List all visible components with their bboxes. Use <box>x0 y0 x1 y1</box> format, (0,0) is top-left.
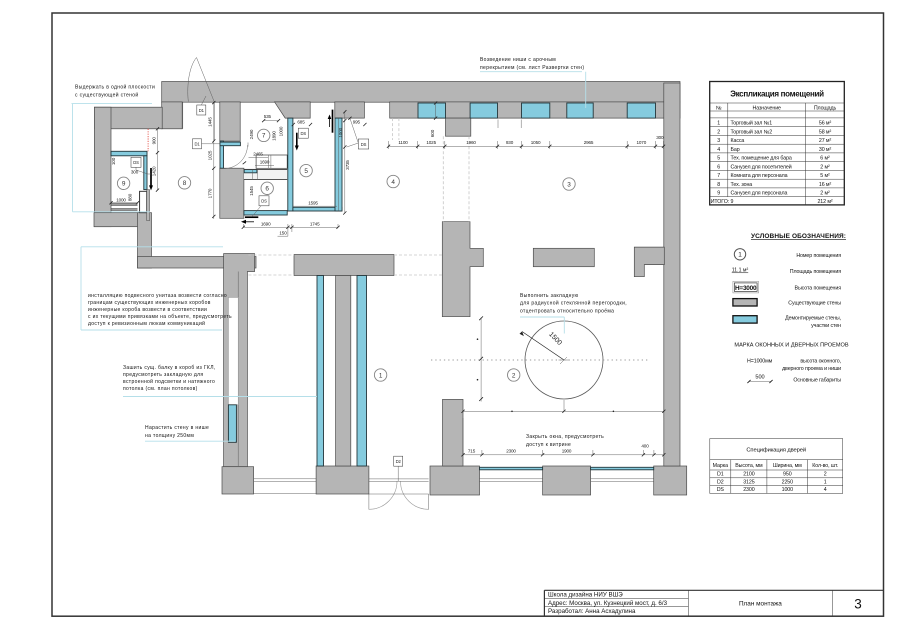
svg-text:Ширина, мм: Ширина, мм <box>773 463 802 469</box>
svg-text:7: 7 <box>262 133 266 140</box>
svg-text:Площадь: Площадь <box>814 105 837 111</box>
svg-text:3: 3 <box>567 181 571 188</box>
svg-text:Назначение: Назначение <box>752 105 781 111</box>
svg-text:2965: 2965 <box>584 140 594 145</box>
svg-text:58 м²: 58 м² <box>819 129 832 135</box>
svg-text:1420: 1420 <box>152 166 157 176</box>
svg-text:УСЛОВНЫЕ ОБОЗНАЧЕНИЯ:: УСЛОВНЫЕ ОБОЗНАЧЕНИЯ: <box>751 233 846 240</box>
svg-text:Школа дизайна НИУ ВШЭ: Школа дизайна НИУ ВШЭ <box>548 592 623 599</box>
svg-text:1: 1 <box>738 252 742 259</box>
svg-text:3735: 3735 <box>345 160 350 170</box>
svg-text:150: 150 <box>279 231 287 236</box>
svg-text:2 м²: 2 м² <box>820 191 830 197</box>
svg-text:930: 930 <box>506 140 514 145</box>
svg-text:4: 4 <box>824 487 827 493</box>
svg-text:995: 995 <box>353 119 361 124</box>
svg-text:Зашить сущ. балку в короб из Г: Зашить сущ. балку в короб из ГКЛ, <box>123 365 216 371</box>
svg-text:Санузел для персонала: Санузел для персонала <box>731 191 788 197</box>
svg-text:8: 8 <box>183 180 187 187</box>
svg-text:9: 9 <box>717 191 720 197</box>
svg-text:5: 5 <box>304 168 308 175</box>
svg-text:1100: 1100 <box>398 140 408 145</box>
svg-text:30 м²: 30 м² <box>819 147 832 153</box>
svg-text:Демонтируемые стены,: Демонтируемые стены, <box>785 316 841 322</box>
svg-text:предусмотреть закладную для: предусмотреть закладную для <box>123 372 203 378</box>
svg-text:1: 1 <box>824 479 827 485</box>
svg-text:600: 600 <box>430 129 435 137</box>
svg-text:4: 4 <box>391 179 395 186</box>
svg-text:6 м²: 6 м² <box>820 156 830 162</box>
svg-text:План монтажа: План монтажа <box>739 601 782 608</box>
svg-text:2 м²: 2 м² <box>820 164 830 170</box>
svg-text:1690: 1690 <box>260 159 270 164</box>
svg-text:4: 4 <box>717 147 720 153</box>
svg-text:перекрытием (см. лист Развертк: перекрытием (см. лист Развертки стен) <box>480 65 584 71</box>
svg-text:Площадь помещения: Площадь помещения <box>790 269 841 275</box>
svg-text:100: 100 <box>111 157 116 165</box>
svg-text:2: 2 <box>717 129 720 135</box>
svg-text:11.1 м²: 11.1 м² <box>732 268 749 274</box>
svg-text:1000: 1000 <box>279 126 284 136</box>
svg-text:Адрес: Москва, ул. Кузнецкий: Адрес: Москва, ул. Кузнецкий мост, д. 6/… <box>548 600 668 607</box>
svg-text:доступ к витрине: доступ к витрине <box>526 442 571 448</box>
svg-text:1890: 1890 <box>272 131 277 141</box>
svg-text:Санузел для посетителей: Санузел для посетителей <box>731 163 792 170</box>
svg-text:Закрыть окна, предусмотреть: Закрыть окна, предусмотреть <box>526 434 604 440</box>
svg-text:2300: 2300 <box>506 449 516 454</box>
svg-text:№: № <box>716 105 722 111</box>
svg-text:доступ к ревизионным люкам ком: доступ к ревизионным люкам коммуникаций <box>88 320 205 327</box>
svg-text:880: 880 <box>128 193 133 201</box>
svg-text:Выдержать в одной плоскости: Выдержать в одной плоскости <box>75 84 155 91</box>
svg-text:1745: 1745 <box>310 222 320 227</box>
svg-text:3125: 3125 <box>743 479 755 485</box>
svg-text:1770: 1770 <box>207 188 212 198</box>
svg-text:212 м²: 212 м² <box>817 199 832 205</box>
svg-text:950: 950 <box>783 472 792 478</box>
svg-text:1: 1 <box>717 121 720 127</box>
svg-text:встроенной подсветки и натяжно: встроенной подсветки и натяжного <box>123 378 215 385</box>
svg-text:7: 7 <box>717 173 720 179</box>
svg-text:инженерные короба возвести в с: инженерные короба возвести в соответстви… <box>88 307 207 313</box>
svg-text:Номер помещения: Номер помещения <box>796 253 841 259</box>
svg-text:DS: DS <box>361 142 367 147</box>
svg-text:Высота помещения: Высота помещения <box>795 286 842 292</box>
svg-text:3: 3 <box>854 597 862 612</box>
svg-text:1050: 1050 <box>531 140 541 145</box>
svg-text:на толщину 250мм: на толщину 250мм <box>145 433 194 439</box>
svg-text:потолка (см. план потолков): потолка (см. план потолков) <box>123 386 198 392</box>
svg-text:высота оконного,: высота оконного, <box>800 359 841 365</box>
svg-text:1960: 1960 <box>466 140 476 145</box>
svg-text:DS: DS <box>133 160 139 165</box>
svg-text:1445: 1445 <box>207 117 212 127</box>
svg-text:1025: 1025 <box>207 150 212 160</box>
svg-text:границам существующих инженерн: границам существующих инженерных коробов <box>88 300 211 306</box>
svg-text:6: 6 <box>717 164 720 170</box>
svg-text:Возведение ниши с арочным: Возведение ниши с арочным <box>480 57 556 63</box>
svg-text:Экспликация помещений: Экспликация помещений <box>730 90 824 99</box>
svg-text:DS: DS <box>717 487 725 493</box>
svg-text:2490: 2490 <box>249 129 254 139</box>
svg-text:Выполнить закладную: Выполнить закладную <box>520 293 579 299</box>
svg-text:МАРКА ОКОННЫХ И ДВЕРНЫХ ПРОЕМО: МАРКА ОКОННЫХ И ДВЕРНЫХ ПРОЕМОВ <box>734 343 848 349</box>
svg-text:Тех. зона: Тех. зона <box>731 182 753 188</box>
svg-text:Касса: Касса <box>731 138 745 144</box>
svg-text:1900: 1900 <box>562 449 572 454</box>
svg-text:16 м²: 16 м² <box>819 182 832 188</box>
svg-text:3: 3 <box>717 138 720 144</box>
svg-text:Н=1000мм: Н=1000мм <box>747 359 773 365</box>
svg-text:2100: 2100 <box>743 472 755 478</box>
svg-text:D1: D1 <box>717 472 724 478</box>
svg-text:27 м²: 27 м² <box>819 138 832 144</box>
svg-text:Существующие стены: Существующие стены <box>788 301 841 307</box>
svg-text:900: 900 <box>152 137 157 145</box>
svg-text:для радиусной стеклянной перег: для радиусной стеклянной перегородки, <box>520 300 627 307</box>
svg-text:2: 2 <box>824 472 827 478</box>
svg-text:дверного проема и ниши: дверного проема и ниши <box>782 366 841 372</box>
svg-text:500: 500 <box>755 375 764 381</box>
svg-text:с их текущими привязками на об: с их текущими привязками на объекте, пре… <box>88 314 232 320</box>
svg-text:Основные габариты: Основные габариты <box>793 378 841 384</box>
svg-text:6: 6 <box>265 186 269 193</box>
svg-text:2250: 2250 <box>782 479 794 485</box>
svg-text:DS: DS <box>261 199 267 204</box>
svg-text:1000: 1000 <box>338 127 343 137</box>
svg-text:5 м²: 5 м² <box>820 173 830 179</box>
svg-text:2465: 2465 <box>253 151 263 156</box>
svg-text:2: 2 <box>512 372 516 379</box>
svg-text:Комната для персонала: Комната для персонала <box>731 173 788 179</box>
svg-text:Торговый зал №1: Торговый зал №1 <box>731 120 773 127</box>
svg-text:56 м²: 56 м² <box>819 121 832 127</box>
svg-text:1025: 1025 <box>426 140 436 145</box>
svg-text:DS: DS <box>301 131 307 136</box>
svg-text:D2: D2 <box>396 459 402 464</box>
svg-text:1690: 1690 <box>261 222 271 227</box>
svg-text:Н=3000: Н=3000 <box>735 285 757 292</box>
svg-text:1070: 1070 <box>636 140 646 145</box>
svg-text:отцентровать относительно проё: отцентровать относительно проёма <box>520 308 614 314</box>
svg-text:9: 9 <box>122 181 126 188</box>
svg-text:8: 8 <box>717 182 720 188</box>
svg-text:1: 1 <box>379 372 383 379</box>
svg-text:Нарастить стену в нише: Нарастить стену в нише <box>145 425 209 431</box>
svg-text:1595: 1595 <box>308 201 318 206</box>
svg-text:535: 535 <box>264 114 272 119</box>
svg-text:Кол-во, шт.: Кол-во, шт. <box>812 463 838 469</box>
svg-text:Бар: Бар <box>731 147 740 153</box>
svg-text:Тех. помещение для бара: Тех. помещение для бара <box>731 156 792 162</box>
svg-text:715: 715 <box>468 449 476 454</box>
svg-text:1000: 1000 <box>116 197 126 202</box>
svg-text:Спецификация дверей: Спецификация дверей <box>746 447 806 454</box>
svg-text:D1: D1 <box>194 142 200 147</box>
svg-text:D1: D1 <box>199 108 205 113</box>
svg-text:инсталляцию подвесного унитаза: инсталляцию подвесного унитаза возвести … <box>88 293 227 299</box>
svg-text:D2: D2 <box>717 479 724 485</box>
svg-text:Торговый зал №2: Торговый зал №2 <box>731 128 773 135</box>
svg-text:400: 400 <box>641 444 649 449</box>
svg-text:1545: 1545 <box>249 186 254 196</box>
svg-text:участки стен: участки стен <box>811 323 841 329</box>
svg-text:300: 300 <box>131 170 139 175</box>
svg-text:Разработал: Анна Асхадулина: Разработал: Анна Асхадулина <box>548 608 636 615</box>
svg-text:300: 300 <box>656 135 664 140</box>
svg-text:2300: 2300 <box>743 487 755 493</box>
svg-text:Высота, мм: Высота, мм <box>735 463 763 469</box>
svg-text:с существующей стеной: с существующей стеной <box>75 92 139 99</box>
svg-text:5: 5 <box>717 156 720 162</box>
svg-text:685: 685 <box>297 119 305 124</box>
svg-text:Марка: Марка <box>713 463 728 469</box>
svg-text:ИТОГО: 9: ИТОГО: 9 <box>711 199 734 205</box>
svg-text:1000: 1000 <box>782 487 794 493</box>
